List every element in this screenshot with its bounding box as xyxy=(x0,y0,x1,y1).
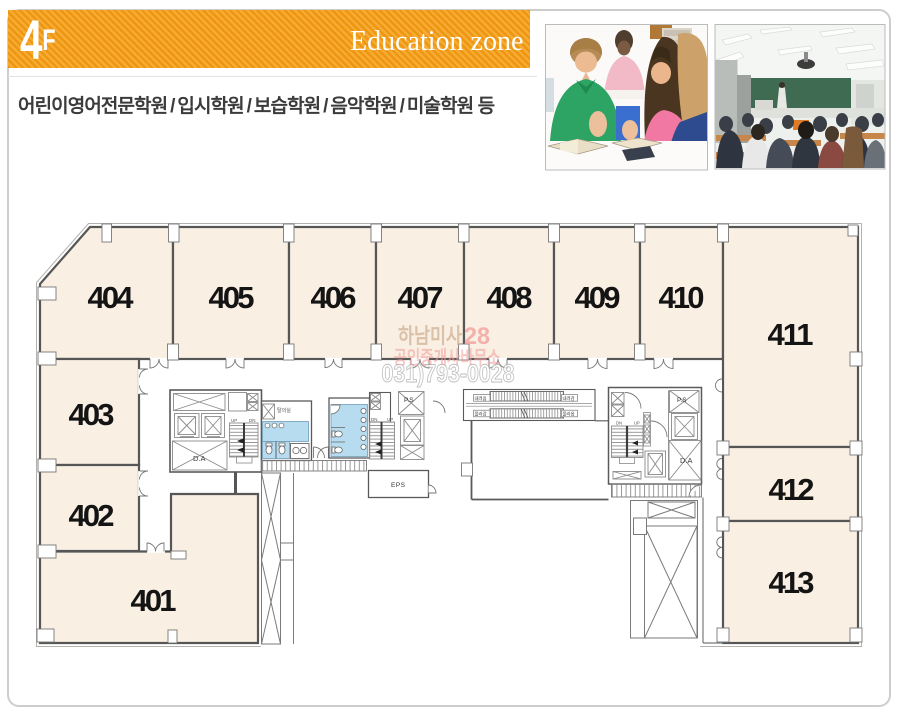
svg-text:031)793-0028: 031)793-0028 xyxy=(382,360,515,388)
svg-text:412: 412 xyxy=(769,472,814,507)
svg-text:402: 402 xyxy=(69,498,114,533)
svg-text:408: 408 xyxy=(487,280,533,315)
svg-text:DN: DN xyxy=(616,421,622,426)
svg-text:413: 413 xyxy=(769,565,815,600)
svg-text:P.S: P.S xyxy=(677,397,687,404)
svg-text:401: 401 xyxy=(131,583,177,618)
svg-text:405: 405 xyxy=(209,280,255,315)
svg-text:하남미사: 하남미사 xyxy=(398,325,463,348)
svg-text:407: 407 xyxy=(398,280,443,315)
svg-text:올라감: 올라감 xyxy=(475,410,487,417)
svg-text:내려감: 내려감 xyxy=(563,395,575,402)
svg-text:411: 411 xyxy=(768,317,814,352)
svg-text:UP: UP xyxy=(231,418,237,423)
svg-text:P.S: P.S xyxy=(404,397,414,404)
svg-text:내려옴: 내려옴 xyxy=(475,395,487,402)
svg-text:EPS: EPS xyxy=(391,482,406,489)
svg-text:410: 410 xyxy=(659,280,704,315)
svg-text:DN: DN xyxy=(249,418,256,423)
svg-text:UP: UP xyxy=(634,421,640,426)
svg-text:탈의실: 탈의실 xyxy=(277,407,291,414)
svg-text:올라옴: 올라옴 xyxy=(563,410,575,417)
svg-text:406: 406 xyxy=(311,280,357,315)
svg-text:D.A: D.A xyxy=(680,456,693,465)
svg-text:403: 403 xyxy=(69,397,115,432)
svg-text:404: 404 xyxy=(88,280,135,315)
svg-text:DN: DN xyxy=(371,417,378,422)
svg-text:UP: UP xyxy=(387,417,393,422)
svg-text:28: 28 xyxy=(464,323,490,350)
svg-text:D.A: D.A xyxy=(193,454,206,463)
svg-text:409: 409 xyxy=(575,280,621,315)
